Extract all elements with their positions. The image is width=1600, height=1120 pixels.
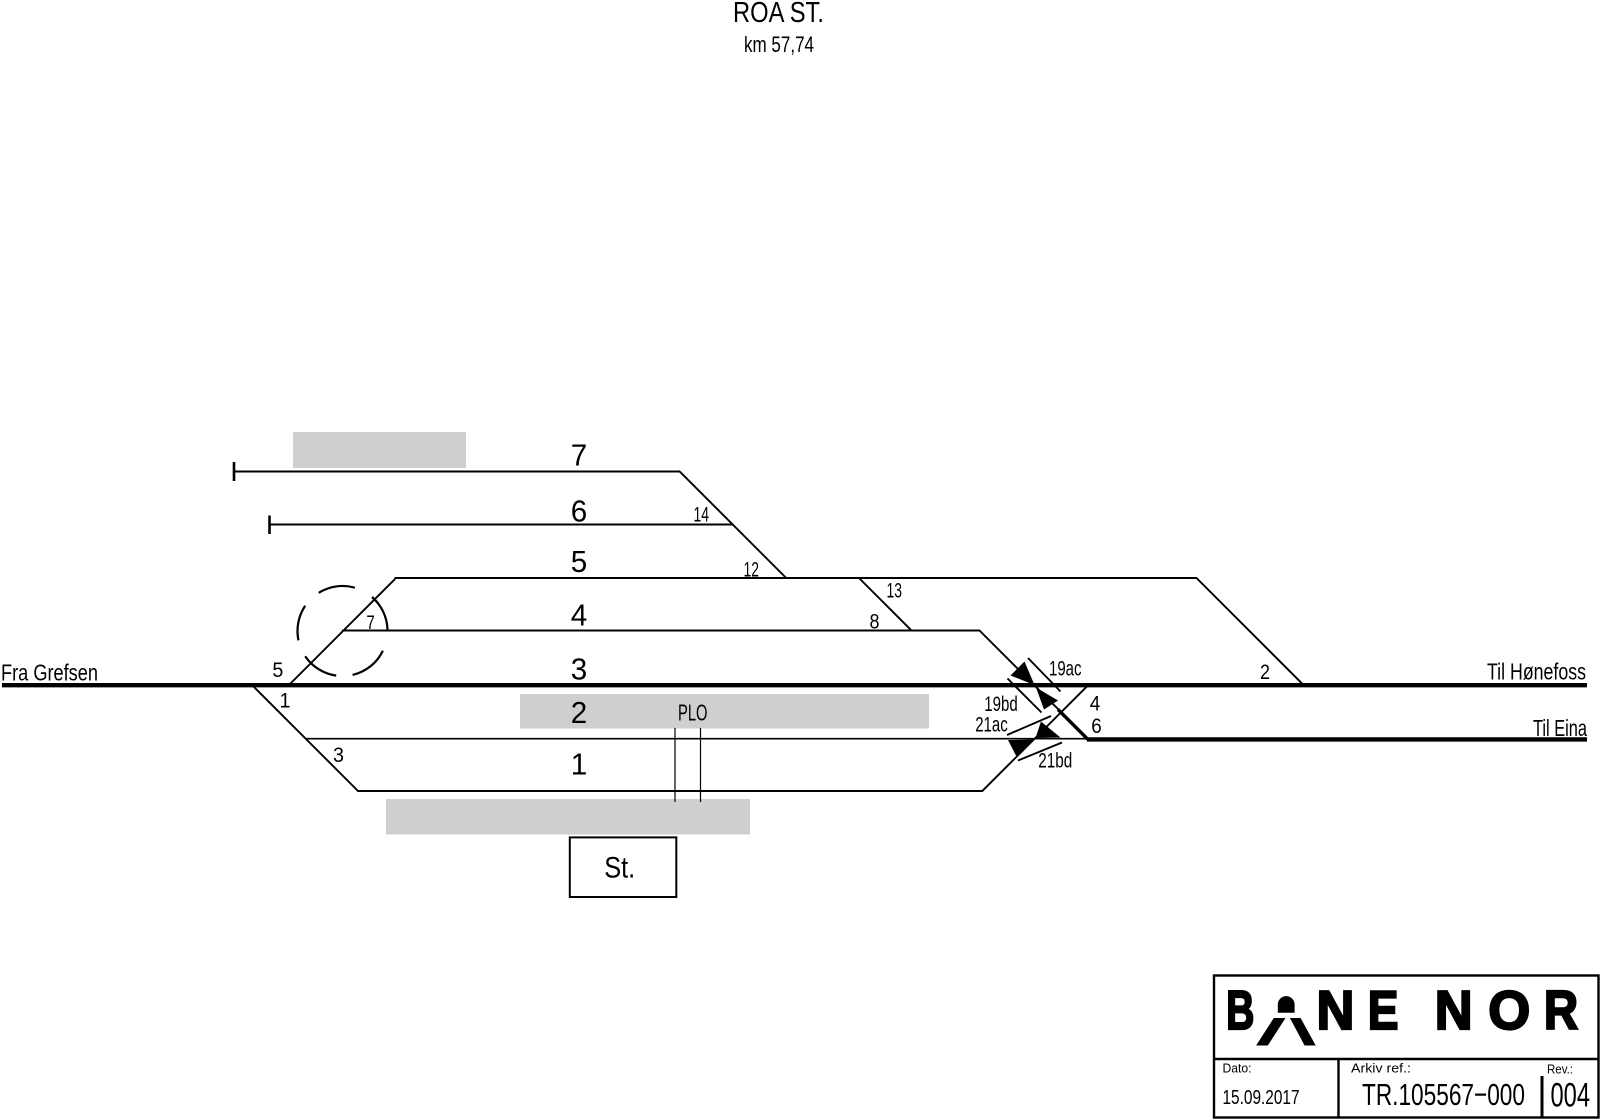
svg-text:3: 3 — [333, 743, 344, 767]
svg-text:004: 004 — [1551, 1077, 1591, 1115]
svg-text:15.09.2017: 15.09.2017 — [1223, 1086, 1300, 1109]
svg-text:Til Hønefoss: Til Hønefoss — [1487, 659, 1586, 685]
svg-text:Arkiv ref.:: Arkiv ref.: — [1351, 1061, 1411, 1076]
svg-text:km 57,74: km 57,74 — [744, 32, 814, 57]
svg-text:Dato:: Dato: — [1223, 1061, 1252, 1076]
svg-text:1: 1 — [280, 689, 291, 713]
svg-text:St.: St. — [604, 851, 635, 884]
svg-text:N: N — [1435, 979, 1473, 1041]
svg-text:6: 6 — [1091, 715, 1102, 738]
svg-text:4: 4 — [571, 599, 588, 633]
svg-text:8: 8 — [870, 611, 880, 634]
svg-text:12: 12 — [744, 559, 760, 582]
svg-text:3: 3 — [571, 652, 588, 686]
svg-text:ROA ST.: ROA ST. — [733, 0, 824, 29]
svg-text:13: 13 — [887, 580, 903, 603]
svg-text:21bd: 21bd — [1038, 749, 1072, 772]
svg-text:Rev.:: Rev.: — [1547, 1062, 1573, 1077]
svg-text:6: 6 — [571, 494, 588, 528]
svg-text:B: B — [1226, 979, 1254, 1041]
svg-text:Fra Grefsen: Fra Grefsen — [1, 660, 98, 686]
svg-text:7: 7 — [571, 438, 588, 472]
svg-text:PLO: PLO — [678, 700, 708, 726]
svg-text:14: 14 — [694, 504, 710, 527]
svg-text:19ac: 19ac — [1049, 658, 1082, 681]
svg-text:TR.105567−000: TR.105567−000 — [1362, 1077, 1525, 1112]
svg-text:7: 7 — [366, 613, 375, 634]
svg-text:Til Eina: Til Eina — [1533, 715, 1587, 741]
svg-text:21ac: 21ac — [975, 713, 1008, 736]
svg-text:5: 5 — [571, 545, 588, 579]
svg-text:E: E — [1368, 979, 1399, 1041]
svg-text:2: 2 — [1260, 661, 1270, 684]
svg-text:4: 4 — [1090, 692, 1101, 715]
svg-text:2: 2 — [571, 696, 588, 730]
svg-text:5: 5 — [272, 658, 283, 682]
svg-text:R: R — [1544, 979, 1578, 1041]
svg-text:O: O — [1488, 979, 1530, 1041]
svg-text:1: 1 — [571, 747, 588, 781]
svg-text:N: N — [1317, 979, 1355, 1041]
